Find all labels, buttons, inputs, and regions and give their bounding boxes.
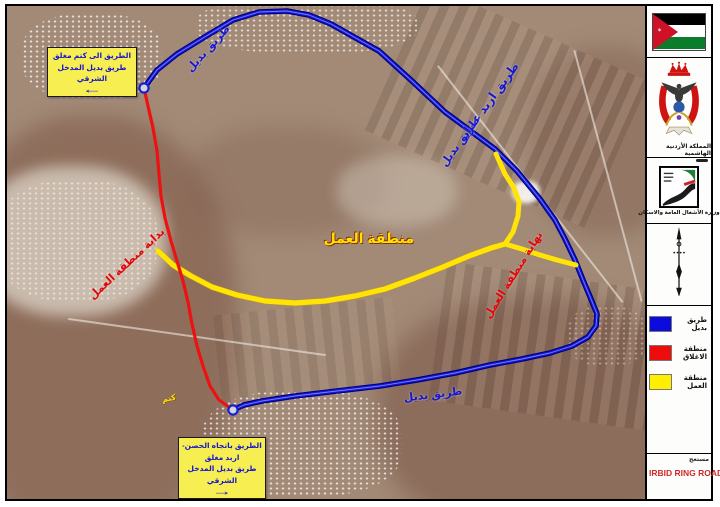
ministry-logo-icon bbox=[659, 166, 699, 208]
north-arrow-panel bbox=[647, 224, 711, 306]
legend-item-work-area: منطقة العمل bbox=[649, 374, 709, 389]
right-arrow-icon: → bbox=[154, 487, 290, 497]
footer-note: مستعج bbox=[649, 456, 709, 463]
kingdom-label: المملكة الأردنية الهاشمية bbox=[647, 143, 711, 157]
legend-label: طريق بديل bbox=[672, 316, 709, 332]
legend-item-alt-road: طريق بديل bbox=[649, 316, 709, 331]
title-block-sidebar: ✶ bbox=[647, 6, 711, 499]
emblem-panel: المملكة الأردنية الهاشمية bbox=[647, 58, 711, 158]
work-area-label: منطقة العمل bbox=[336, 230, 414, 247]
legend-panel: طريق بديل منطقة الاغلاق منطقة العمل bbox=[647, 306, 711, 453]
ministry-panel: وزارة الأشغال العامة والاسكان bbox=[647, 158, 711, 224]
flag-star-icon: ✶ bbox=[657, 28, 662, 34]
left-arrow-icon: ← bbox=[22, 85, 161, 95]
legend-swatch-red bbox=[649, 345, 672, 361]
detour-callout-top: الطريق الى كتم مغلق طريق بديل المدخل الش… bbox=[47, 47, 137, 97]
jordan-flag-icon: ✶ bbox=[652, 13, 706, 51]
north-arrow-icon bbox=[671, 227, 687, 303]
detour-callout-bottom: الطريق باتجاه الحصن-اربد مغلق طريق بديل … bbox=[178, 437, 266, 499]
legend-item-closure: منطقة الاغلاق bbox=[649, 345, 709, 360]
alt-road-blue-centerline bbox=[144, 11, 597, 410]
closure-end-node bbox=[228, 405, 237, 414]
satellite-map: طريق بديل طريق اربد عمان طريق بديل طريق … bbox=[7, 6, 647, 499]
legend-label: منطقة الاغلاق bbox=[672, 345, 709, 361]
legend-swatch-yellow bbox=[649, 374, 672, 390]
legend-swatch-blue bbox=[649, 316, 672, 332]
map-sheet-frame: طريق بديل طريق اربد عمان طريق بديل طريق … bbox=[5, 4, 713, 501]
alt-road-blue-casing bbox=[144, 11, 597, 410]
project-name: IRBID RING ROAD bbox=[649, 468, 709, 478]
small-annotation-mark bbox=[696, 159, 708, 162]
legend-label: منطقة العمل bbox=[672, 374, 709, 390]
screenshot-root: طريق بديل طريق اربد عمان طريق بديل طريق … bbox=[0, 0, 720, 507]
jordan-coat-of-arms-icon bbox=[655, 61, 703, 142]
alt-road-blue bbox=[144, 11, 597, 410]
footer-panel: مستعج IRBID RING ROAD bbox=[647, 453, 711, 499]
ministry-label: وزارة الأشغال العامة والاسكان bbox=[638, 210, 719, 216]
callout-line: الطريق باتجاه الحصن-اربد مغلق bbox=[182, 440, 262, 463]
callout-line: الطريق الى كتم مغلق bbox=[51, 50, 133, 62]
flag-panel: ✶ bbox=[647, 6, 711, 58]
